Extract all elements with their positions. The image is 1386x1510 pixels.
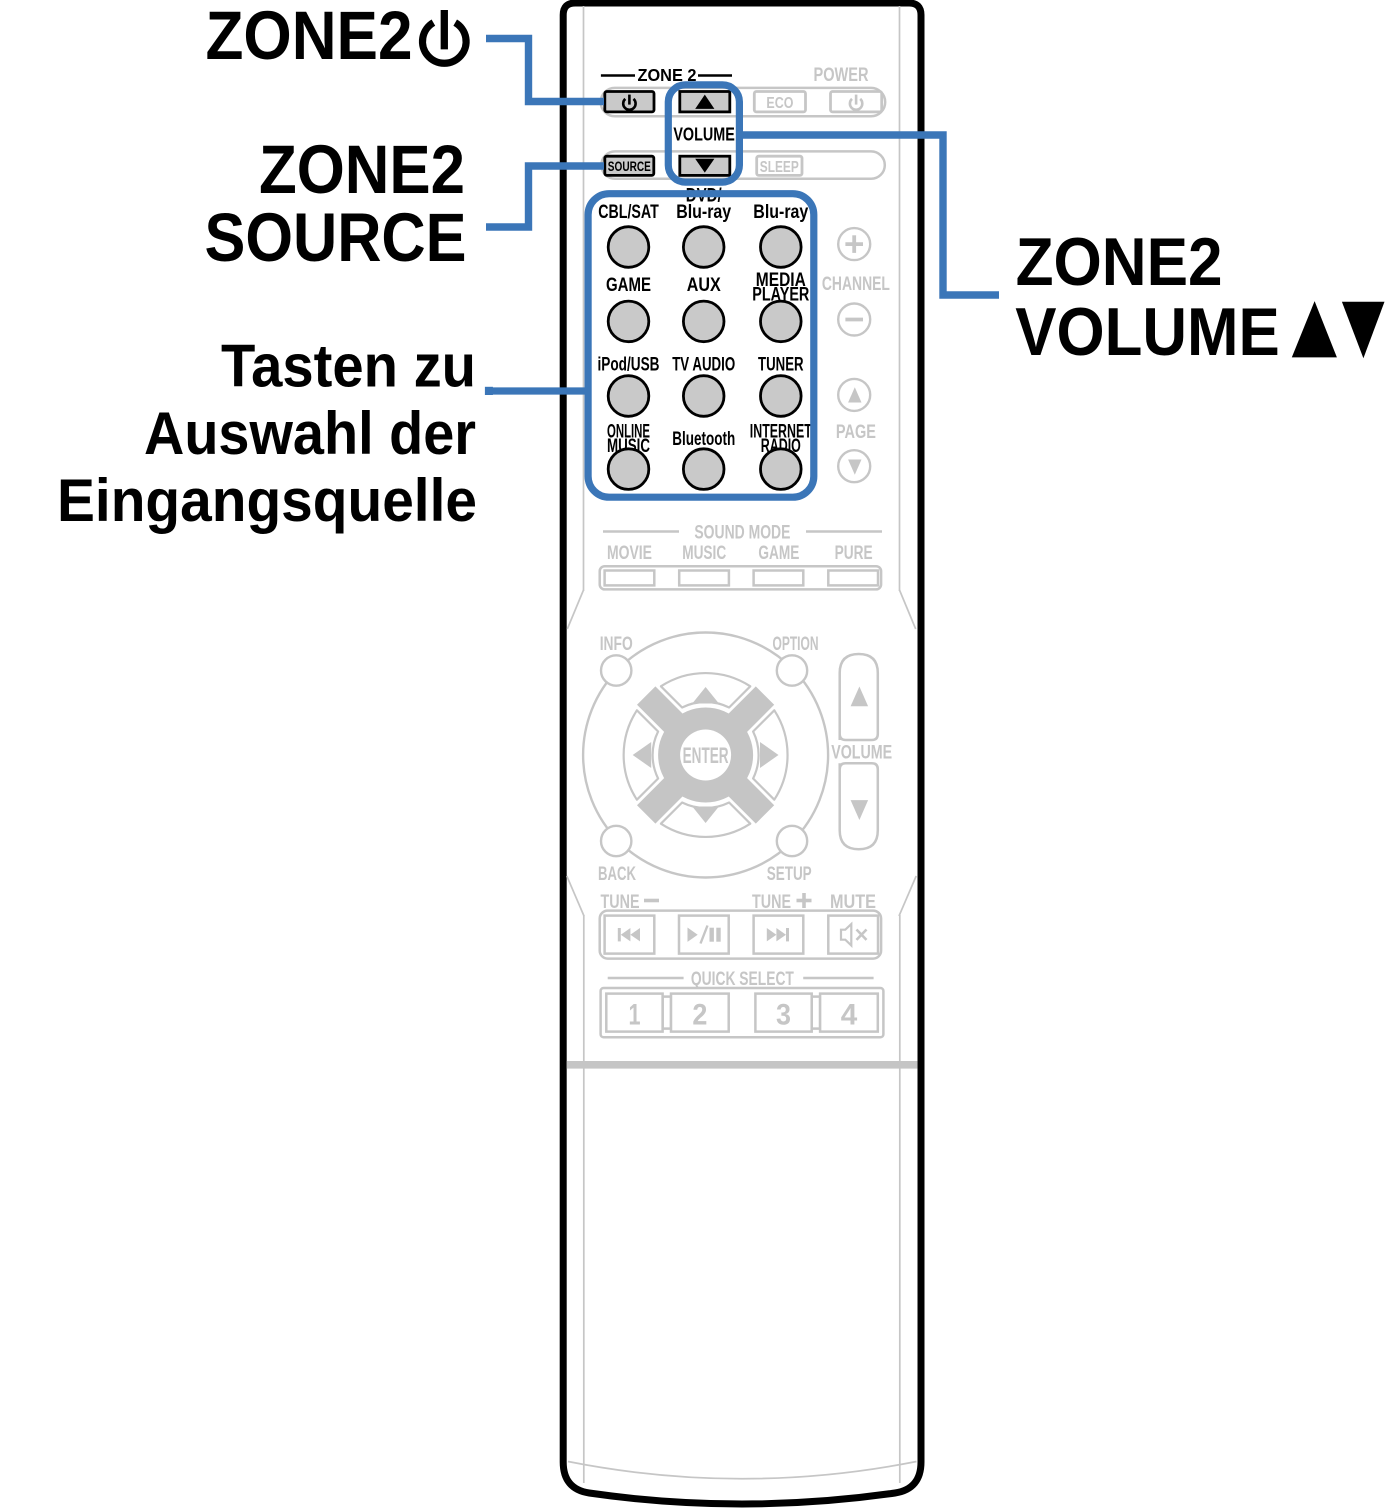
- svg-text:OPTION: OPTION: [773, 633, 819, 655]
- svg-text:GAME: GAME: [758, 542, 799, 564]
- svg-text:QUICK SELECT: QUICK SELECT: [691, 968, 794, 990]
- svg-text:PAGE: PAGE: [836, 421, 876, 443]
- svg-text:Blu-ray: Blu-ray: [676, 201, 731, 223]
- svg-text:GAME: GAME: [606, 274, 651, 296]
- svg-text:Tasten zu: Tasten zu: [221, 333, 476, 400]
- svg-text:ECO: ECO: [766, 95, 793, 112]
- svg-text:3: 3: [776, 998, 791, 1031]
- svg-text:TUNER: TUNER: [758, 353, 804, 375]
- svg-text:MOVIE: MOVIE: [607, 542, 652, 564]
- svg-text:4: 4: [841, 998, 858, 1031]
- svg-text:Blu-ray: Blu-ray: [753, 201, 808, 223]
- svg-text:TV AUDIO: TV AUDIO: [672, 353, 735, 375]
- svg-text:ENTER: ENTER: [683, 743, 729, 768]
- svg-text:ZONE2: ZONE2: [1016, 224, 1223, 300]
- svg-text:ZONE2: ZONE2: [206, 0, 413, 74]
- svg-text:SETUP: SETUP: [767, 863, 812, 885]
- svg-text:AUX: AUX: [687, 274, 721, 296]
- svg-text:SOURCE: SOURCE: [205, 199, 467, 276]
- svg-text:BACK: BACK: [598, 863, 636, 885]
- svg-text:CHANNEL: CHANNEL: [822, 273, 890, 295]
- svg-text:VOLUME: VOLUME: [673, 124, 735, 145]
- svg-text:2: 2: [692, 998, 707, 1031]
- svg-text:SOUND MODE: SOUND MODE: [694, 522, 790, 544]
- svg-text:iPod/USB: iPod/USB: [598, 353, 660, 375]
- svg-text:INFO: INFO: [600, 633, 633, 655]
- svg-text:POWER: POWER: [814, 64, 869, 86]
- svg-text:Auswahl der: Auswahl der: [144, 400, 476, 467]
- svg-text:VOLUME: VOLUME: [1015, 294, 1280, 370]
- svg-text:PURE: PURE: [835, 542, 873, 564]
- svg-text:Bluetooth: Bluetooth: [672, 428, 735, 450]
- svg-text:CBL/SAT: CBL/SAT: [598, 201, 659, 223]
- svg-text:1: 1: [628, 998, 640, 1031]
- svg-text:SOURCE: SOURCE: [608, 159, 651, 174]
- svg-text:Eingangsquelle: Eingangsquelle: [57, 467, 477, 534]
- svg-text:MUSIC: MUSIC: [682, 542, 726, 564]
- svg-text:ZONE2: ZONE2: [259, 131, 465, 208]
- svg-text:VOLUME: VOLUME: [831, 742, 892, 764]
- svg-text:SLEEP: SLEEP: [760, 159, 799, 176]
